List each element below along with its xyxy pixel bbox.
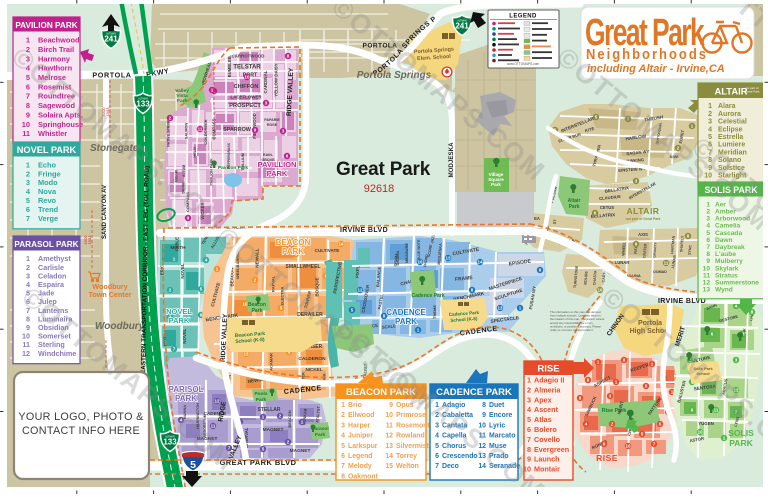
svg-text:STELLAR: STELLAR xyxy=(257,407,280,413)
svg-text:BEACON: BEACON xyxy=(276,238,311,247)
svg-text:Dawn: Dawn xyxy=(715,237,733,244)
svg-text:1: 1 xyxy=(706,201,710,208)
svg-text:NICKEL: NICKEL xyxy=(305,367,322,372)
svg-text:3: 3 xyxy=(708,119,712,126)
svg-text:Harper: Harper xyxy=(348,422,371,429)
svg-text:12: 12 xyxy=(22,349,30,358)
svg-text:MODJESKA: MODJESKA xyxy=(448,142,455,178)
svg-text:1: 1 xyxy=(26,160,30,169)
svg-text:Torrey: Torrey xyxy=(396,453,417,460)
svg-text:COLDCREEK: COLDCREEK xyxy=(203,119,208,144)
svg-text:Revo: Revo xyxy=(38,196,57,205)
svg-text:11: 11 xyxy=(211,424,216,429)
svg-text:Fringe: Fringe xyxy=(38,169,61,178)
svg-text:11: 11 xyxy=(386,422,393,429)
svg-text:133: 133 xyxy=(163,438,177,447)
svg-text:Estrella: Estrella xyxy=(718,134,743,141)
svg-text:SPARROW: SPARROW xyxy=(223,127,252,133)
svg-text:8: 8 xyxy=(706,251,710,258)
svg-text:14: 14 xyxy=(338,242,344,247)
svg-text:9: 9 xyxy=(527,455,531,464)
svg-text:CARDINAL: CARDINAL xyxy=(263,70,268,93)
svg-text:11: 11 xyxy=(198,127,203,132)
svg-text:Bolero: Bolero xyxy=(534,425,557,434)
svg-text:Wynd: Wynd xyxy=(715,287,733,294)
svg-text:IRVINE BLVD: IRVINE BLVD xyxy=(340,227,388,234)
svg-text:10: 10 xyxy=(597,288,603,293)
svg-text:7: 7 xyxy=(435,463,439,470)
svg-text:Lyric: Lyric xyxy=(489,422,505,429)
svg-text:Aurora: Aurora xyxy=(718,111,741,118)
svg-text:Verge: Verge xyxy=(38,214,58,223)
svg-text:1: 1 xyxy=(341,402,345,409)
svg-text:Mulberry: Mulberry xyxy=(715,258,743,265)
svg-text:4: 4 xyxy=(341,433,345,440)
svg-text:Rosemont: Rosemont xyxy=(396,422,430,429)
svg-text:SMALLWHEEL: SMALLWHEEL xyxy=(286,264,321,270)
svg-text:8: 8 xyxy=(527,445,531,454)
svg-text:YELLOW DAISY: YELLOW DAISY xyxy=(274,63,279,96)
svg-text:PARK: PARK xyxy=(267,169,288,178)
svg-text:PARISOL: PARISOL xyxy=(169,385,204,394)
svg-text:PORTOLA: PORTOLA xyxy=(92,71,131,80)
svg-text:CETUS: CETUS xyxy=(600,205,614,210)
svg-text:Park: Park xyxy=(315,432,326,438)
svg-text:13: 13 xyxy=(445,256,451,261)
svg-text:Park: Park xyxy=(177,98,188,104)
svg-text:MEASURE: MEASURE xyxy=(404,243,409,263)
svg-text:2: 2 xyxy=(708,111,712,118)
svg-text:10: 10 xyxy=(417,260,423,265)
svg-text:2: 2 xyxy=(527,385,531,394)
svg-text:Welton: Welton xyxy=(396,463,419,470)
svg-text:LEGEND: LEGEND xyxy=(509,14,537,20)
svg-text:Encore: Encore xyxy=(489,412,513,419)
svg-text:Oakmont: Oakmont xyxy=(348,473,379,480)
svg-text:14: 14 xyxy=(477,260,483,265)
svg-text:Evergreen: Evergreen xyxy=(534,445,569,454)
svg-text:Duet: Duet xyxy=(489,402,505,409)
svg-text:RISE: RISE xyxy=(596,453,618,463)
svg-text:Apex: Apex xyxy=(534,395,552,404)
svg-text:DOMAD: DOMAD xyxy=(653,270,667,274)
svg-text:www.OTTOMAPS.com: www.OTTOMAPS.com xyxy=(507,62,540,66)
svg-text:PARK: PARK xyxy=(169,316,190,325)
svg-text:15: 15 xyxy=(385,463,393,470)
svg-text:Silvermist: Silvermist xyxy=(396,443,430,450)
svg-text:ALTAIR: ALTAIR xyxy=(715,86,748,97)
svg-text:Beachwood: Beachwood xyxy=(38,36,80,45)
svg-text:PARK: PARK xyxy=(395,317,417,326)
svg-text:AXIS: AXIS xyxy=(638,232,648,237)
svg-text:13: 13 xyxy=(497,306,503,311)
svg-text:Deco: Deco xyxy=(442,463,459,470)
svg-text:FIELDWOOD: FIELDWOOD xyxy=(252,113,257,139)
svg-text:9: 9 xyxy=(482,412,486,419)
svg-text:3: 3 xyxy=(527,395,531,404)
svg-text:notify us of errors; we apprec: notify us of errors; we appreciate it. xyxy=(550,328,594,332)
svg-text:8: 8 xyxy=(341,473,345,480)
svg-text:Celestial: Celestial xyxy=(718,119,747,126)
svg-text:NOVEL PARK: NOVEL PARK xyxy=(17,145,77,155)
svg-text:Summerstone: Summerstone xyxy=(715,280,759,287)
svg-text:Modo: Modo xyxy=(38,178,58,187)
svg-text:11: 11 xyxy=(664,261,669,266)
svg-text:ALTMAN: ALTMAN xyxy=(138,98,148,101)
svg-text:Larkspur: Larkspur xyxy=(348,443,378,450)
svg-text:2: 2 xyxy=(341,412,345,419)
svg-text:Juniper: Juniper xyxy=(348,433,373,440)
svg-text:Great Park: Great Park xyxy=(336,159,431,180)
svg-text:Melody: Melody xyxy=(348,463,372,470)
svg-text:RAIN-: RAIN- xyxy=(263,153,274,157)
svg-text:5: 5 xyxy=(527,415,531,424)
svg-text:6: 6 xyxy=(341,453,345,460)
svg-text:12: 12 xyxy=(703,280,711,287)
svg-text:6: 6 xyxy=(435,453,439,460)
svg-text:BEACON: BEACON xyxy=(287,410,292,427)
svg-text:4: 4 xyxy=(706,223,710,230)
svg-text:6: 6 xyxy=(706,237,710,244)
svg-text:Park: Park xyxy=(491,182,501,187)
svg-text:CALDERON: CALDERON xyxy=(298,356,326,362)
svg-text:11: 11 xyxy=(714,408,719,413)
svg-text:10: 10 xyxy=(697,430,703,435)
svg-text:3: 3 xyxy=(706,216,710,223)
svg-text:92618: 92618 xyxy=(364,183,395,195)
svg-text:ROSE: ROSE xyxy=(267,123,278,127)
svg-text:NATIVE SPRING: NATIVE SPRING xyxy=(167,119,171,147)
svg-text:TELSTAR: TELSTAR xyxy=(233,65,261,71)
svg-text:2: 2 xyxy=(26,169,30,178)
svg-text:ALTAIR: ALTAIR xyxy=(627,206,660,216)
svg-text:1: 1 xyxy=(708,103,712,110)
svg-text:Cascada: Cascada xyxy=(715,230,742,237)
svg-text:10: 10 xyxy=(703,265,711,272)
svg-text:THEME: THEME xyxy=(432,305,437,319)
svg-text:Nova: Nova xyxy=(38,187,57,196)
svg-text:YOUR LOGO, PHOTO &: YOUR LOGO, PHOTO & xyxy=(18,411,144,423)
svg-text:ALTMAN: ALTMAN xyxy=(457,20,467,23)
svg-text:14: 14 xyxy=(385,453,393,460)
svg-text:4: 4 xyxy=(708,126,712,133)
svg-text:13: 13 xyxy=(703,287,711,294)
svg-text:SALMON: SALMON xyxy=(185,123,189,140)
svg-text:Park: Park xyxy=(252,308,263,314)
svg-text:L'aube: L'aube xyxy=(715,251,736,258)
svg-text:241: 241 xyxy=(455,22,469,31)
svg-text:Cadence Park: Cadence Park xyxy=(411,293,444,299)
svg-text:7: 7 xyxy=(527,435,531,444)
svg-text:MAGNET: MAGNET xyxy=(290,448,311,454)
svg-text:Rowland: Rowland xyxy=(396,433,425,440)
svg-text:12: 12 xyxy=(357,288,363,293)
svg-text:HELIX: HELIX xyxy=(193,146,197,158)
svg-text:6: 6 xyxy=(26,205,30,214)
svg-text:10: 10 xyxy=(625,444,631,449)
svg-text:32618: 32618 xyxy=(88,235,92,244)
svg-text:5: 5 xyxy=(26,196,30,205)
svg-text:7: 7 xyxy=(26,214,30,223)
svg-text:Ellwood: Ellwood xyxy=(348,412,374,419)
svg-text:NOVEL: NOVEL xyxy=(180,263,185,278)
svg-text:Ascent: Ascent xyxy=(534,405,559,414)
svg-text:PEPPERGRASS: PEPPERGRASS xyxy=(227,142,231,169)
svg-text:2: 2 xyxy=(706,209,710,216)
svg-text:5: 5 xyxy=(706,230,710,237)
svg-text:8: 8 xyxy=(26,101,30,110)
svg-text:Stratus: Stratus xyxy=(715,272,738,279)
svg-text:PROSPECT: PROSPECT xyxy=(229,103,261,109)
svg-text:4: 4 xyxy=(435,433,439,440)
svg-text:9: 9 xyxy=(706,258,710,265)
svg-text:133: 133 xyxy=(136,100,150,109)
svg-text:9: 9 xyxy=(389,402,393,409)
svg-text:Pavilion Park: Pavilion Park xyxy=(218,165,248,171)
svg-text:11: 11 xyxy=(703,272,710,279)
svg-text:8: 8 xyxy=(482,402,486,409)
svg-text:BLUE NOTE: BLUE NOTE xyxy=(417,239,421,260)
svg-text:CULTIVATE: CULTIVATE xyxy=(315,248,340,253)
svg-text:11: 11 xyxy=(22,129,30,138)
svg-text:PARASOL PARK: PARASOL PARK xyxy=(14,240,78,249)
svg-text:Park: Park xyxy=(569,204,580,210)
svg-text:Brio: Brio xyxy=(348,402,362,409)
svg-text:NOVEL: NOVEL xyxy=(166,307,192,316)
svg-text:Camelia: Camelia xyxy=(715,223,741,230)
svg-text:7: 7 xyxy=(341,463,345,470)
svg-text:Atlas: Atlas xyxy=(534,415,552,424)
svg-text:3: 3 xyxy=(341,422,345,429)
svg-text:CHIFFON: CHIFFON xyxy=(234,84,259,90)
svg-text:6: 6 xyxy=(527,425,531,434)
svg-text:not part of Great Park: not part of Great Park xyxy=(626,217,661,221)
svg-text:Daybreak: Daybreak xyxy=(715,244,745,251)
svg-text:5: 5 xyxy=(341,443,345,450)
svg-text:Almeria: Almeria xyxy=(534,385,561,394)
svg-text:ALTMAN: ALTMAN xyxy=(106,33,116,36)
svg-text:PAPARIE: PAPARIE xyxy=(264,118,280,122)
svg-text:Whistler: Whistler xyxy=(38,129,67,138)
svg-text:Alara: Alara xyxy=(718,103,736,110)
svg-text:3: 3 xyxy=(26,178,30,187)
svg-text:Birch Trail: Birch Trail xyxy=(38,45,74,54)
svg-text:Neighborhoods: Neighborhoods xyxy=(586,45,708,62)
svg-text:CONTACT INFO HERE: CONTACT INFO HERE xyxy=(22,425,140,437)
svg-text:FABLE: FABLE xyxy=(175,237,180,251)
svg-text:LUNAR: LUNAR xyxy=(615,260,630,265)
svg-text:PAVILION PARK: PAVILION PARK xyxy=(15,21,77,30)
svg-text:12: 12 xyxy=(385,433,393,440)
svg-text:Skylark: Skylark xyxy=(715,265,739,272)
svg-text:13: 13 xyxy=(385,443,393,450)
svg-text:12: 12 xyxy=(214,399,220,404)
svg-text:PARK: PARK xyxy=(282,247,304,256)
svg-text:Eclipse: Eclipse xyxy=(718,126,743,133)
svg-text:Trend: Trend xyxy=(38,205,59,214)
svg-text:Echo: Echo xyxy=(38,160,57,169)
svg-text:Woodbury: Woodbury xyxy=(95,321,145,332)
svg-text:1: 1 xyxy=(527,376,531,385)
svg-text:Park: Park xyxy=(256,397,267,403)
svg-text:YUGEN: YUGEN xyxy=(698,421,714,426)
svg-text:NOVEL: NOVEL xyxy=(182,328,187,343)
svg-text:5: 5 xyxy=(190,459,196,471)
svg-text:PAVILLION: PAVILLION xyxy=(258,160,297,169)
svg-text:10: 10 xyxy=(22,120,30,129)
svg-text:Legend: Legend xyxy=(348,453,373,460)
svg-text:13: 13 xyxy=(243,352,249,357)
svg-text:SAND CANYON AV: SAND CANYON AV xyxy=(102,185,108,239)
svg-text:10: 10 xyxy=(244,75,250,80)
svg-text:7: 7 xyxy=(706,244,710,251)
svg-text:CADENCE: CADENCE xyxy=(386,308,426,317)
svg-text:5: 5 xyxy=(435,443,439,450)
svg-text:LACEFLOWER: LACEFLOWER xyxy=(231,95,263,100)
svg-text:Pools: Pools xyxy=(254,391,267,397)
svg-text:10: 10 xyxy=(385,412,393,419)
svg-text:MAGNET: MAGNET xyxy=(263,427,284,433)
svg-text:Town Center: Town Center xyxy=(89,290,132,299)
svg-text:Covello: Covello xyxy=(534,435,561,444)
svg-text:PARK: PARK xyxy=(729,438,753,448)
svg-text:RISE: RISE xyxy=(537,364,559,375)
svg-text:CARROTWOOD: CARROTWOOD xyxy=(232,54,265,59)
svg-text:ACAMAR: ACAMAR xyxy=(269,353,274,371)
svg-text:9: 9 xyxy=(26,110,30,119)
svg-text:Adagio II: Adagio II xyxy=(534,376,564,385)
svg-text:7: 7 xyxy=(26,92,30,101)
svg-text:Great Park: Great Park xyxy=(745,90,760,94)
svg-text:4: 4 xyxy=(527,405,531,414)
svg-text:241: 241 xyxy=(104,35,118,44)
svg-text:Launch: Launch xyxy=(534,455,560,464)
